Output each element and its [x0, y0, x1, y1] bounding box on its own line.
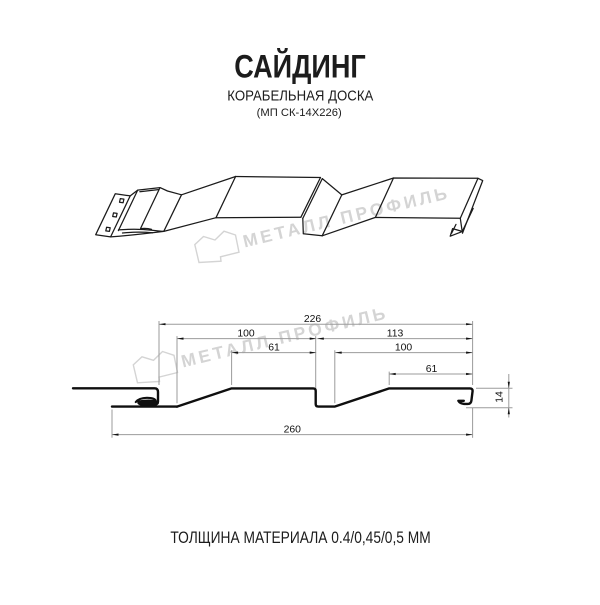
svg-text:100: 100	[395, 342, 413, 353]
svg-text:ТОЛЩИНА МАТЕРИАЛА 0.4/0,45/0,5: ТОЛЩИНА МАТЕРИАЛА 0.4/0,45/0,5 ММ	[170, 528, 430, 547]
svg-text:(МП СК-14Х226): (МП СК-14Х226)	[257, 107, 342, 119]
svg-text:КОРАБЕЛЬНАЯ ДОСКА: КОРАБЕЛЬНАЯ ДОСКА	[227, 88, 373, 104]
svg-text:226: 226	[304, 314, 322, 325]
svg-text:113: 113	[387, 328, 404, 339]
svg-text:100: 100	[237, 328, 255, 339]
svg-text:61: 61	[268, 342, 280, 353]
svg-text:САЙДИНГ: САЙДИНГ	[234, 49, 365, 85]
svg-text:260: 260	[284, 424, 302, 435]
svg-text:61: 61	[426, 364, 438, 375]
svg-text:14: 14	[495, 391, 506, 403]
